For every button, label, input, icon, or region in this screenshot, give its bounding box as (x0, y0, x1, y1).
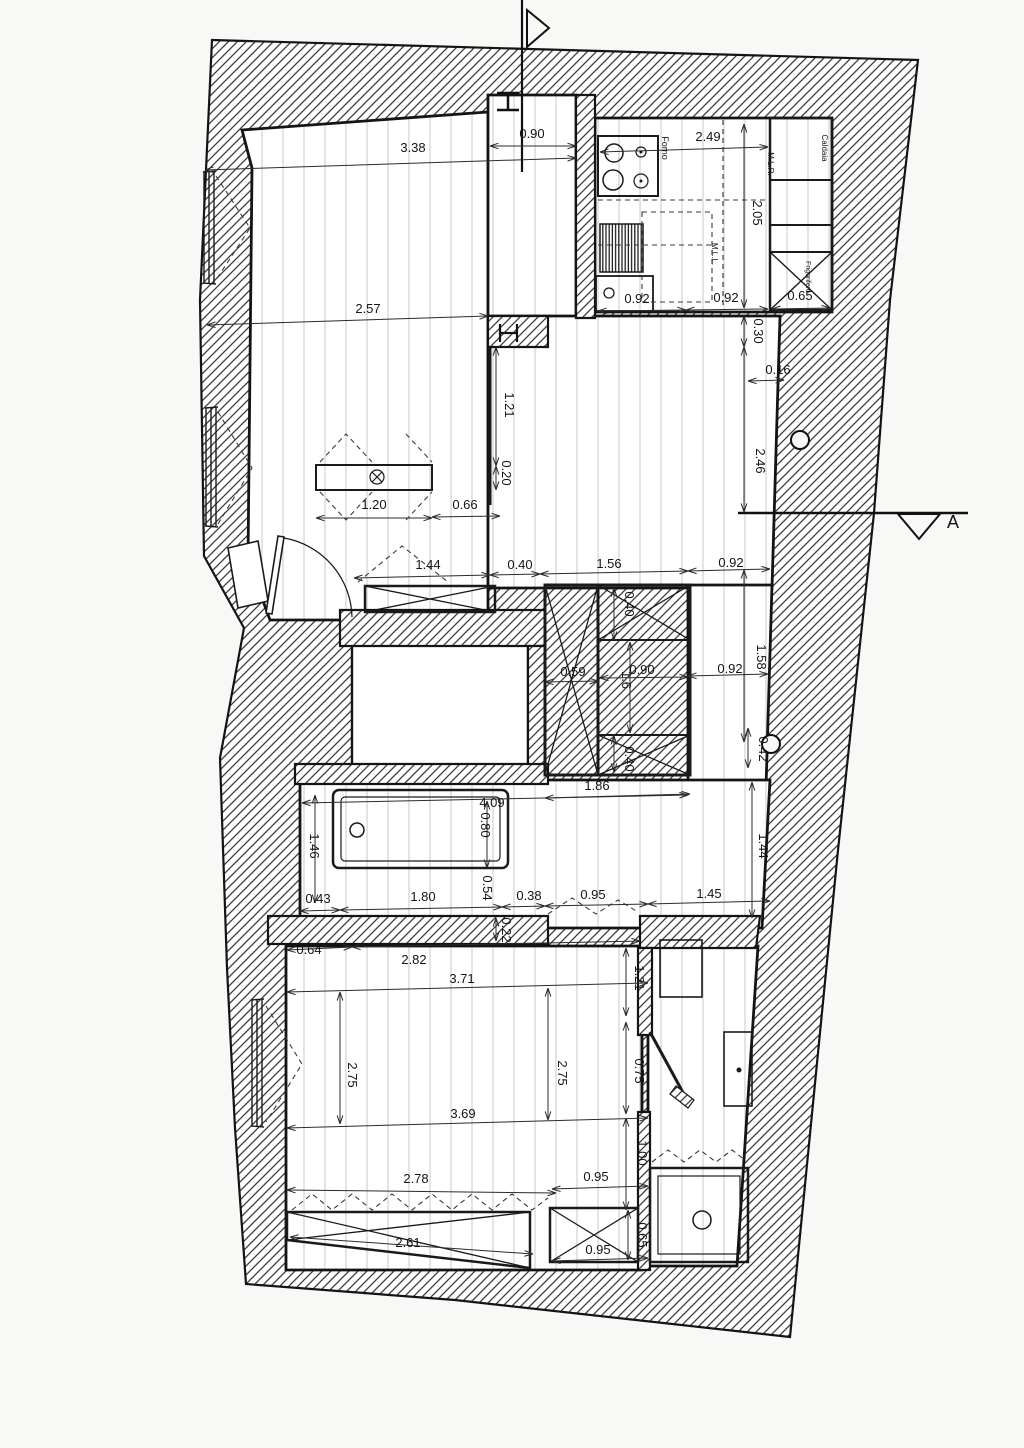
dim-label: 0.65 (635, 1222, 650, 1247)
floor-plan-sheet: 0.903.382.49FornoM.L.R.Caldaia2.05M.L.L.… (0, 0, 1024, 1448)
section-label-a: A (947, 512, 959, 532)
dim-label: 0.42 (756, 736, 771, 761)
dim-label: 1.56 (596, 556, 621, 571)
dim-label: 0.38 (516, 888, 541, 903)
dim-label: 2.57 (355, 301, 380, 316)
room-hall (488, 316, 780, 588)
dim-label: 0.40 (507, 557, 532, 572)
label-oven: Forno (660, 136, 670, 160)
dim-label: 0.66 (452, 497, 477, 512)
cabinet-knob-icon (737, 1068, 742, 1073)
dim-label: 0.92 (717, 661, 742, 676)
dim-label: 0.80 (478, 812, 493, 837)
dim-label: 0.40 (622, 591, 637, 616)
room-kitchen (595, 118, 832, 312)
dim-label: 2.75 (555, 1060, 570, 1085)
dim-label: 0.30 (751, 318, 766, 343)
dim-label: 1.86 (584, 778, 609, 793)
dim-label: 2.49 (695, 129, 720, 144)
dim-label: 1.20 (361, 497, 386, 512)
section-arrow-icon (898, 514, 940, 539)
dim-label: 0.75 (632, 1058, 647, 1083)
dim-label: 1.00 (635, 1140, 650, 1165)
void-shaft (352, 642, 528, 768)
dim-label: 3.71 (449, 971, 474, 986)
dim-label: 2.05 (750, 200, 765, 225)
dim-label: 1.21 (632, 965, 647, 990)
section-arrow-icon (527, 10, 549, 47)
dim-label: 1.44 (415, 557, 440, 572)
dim-label: 1.6 (619, 671, 634, 689)
dim-label: 0.16 (765, 362, 790, 377)
dim-label: 0.95 (585, 1242, 610, 1257)
dim-label: 0.20 (499, 460, 514, 485)
dim-label: 0.40 (622, 746, 637, 771)
dim-label: 1.58 (754, 644, 769, 669)
dim-label: 0.92 (624, 291, 649, 306)
dim-label: 3.38 (400, 140, 425, 155)
dim-label: 0.92 (713, 290, 738, 305)
dim-label: 1.80 (410, 889, 435, 904)
pipe-circle-icon (791, 431, 809, 449)
dim-label: 0.95 (583, 1169, 608, 1184)
dim-label: 0.65 (787, 288, 812, 303)
floor-plan-drawing: 0.903.382.49FornoM.L.R.Caldaia2.05M.L.L.… (0, 0, 1024, 1448)
dim-label: 2.78 (403, 1171, 428, 1186)
dim-label: 0.90 (519, 126, 544, 141)
dim-label: 4.09 (479, 795, 504, 810)
dim-label: 2.46 (753, 448, 768, 473)
dim-label: 0.43 (305, 891, 330, 906)
dim-label: 0.95 (580, 887, 605, 902)
dim-label: 2.61 (395, 1235, 420, 1250)
dim-label: 2.75 (345, 1062, 360, 1087)
dim-label: 1.46 (307, 833, 322, 858)
dim-label: 0.54 (480, 875, 495, 900)
dim-label: 0.22 (499, 917, 514, 942)
dim-label: 0.92 (718, 555, 743, 570)
label-boiler: Caldaia (820, 134, 829, 162)
dim-label: 3.69 (450, 1106, 475, 1121)
dim-label: 1.21 (502, 392, 517, 417)
burner-dot (640, 180, 643, 183)
dim-label: 0.59 (560, 664, 585, 679)
radiator (600, 224, 643, 272)
label-mll: M.L.L. (710, 243, 719, 265)
dim-label: 1.45 (696, 886, 721, 901)
dim-label: 1.44 (756, 833, 771, 858)
label-mlr: M.L.R. (766, 152, 775, 176)
dim-label: 0.64 (296, 942, 321, 957)
dim-label: 2.82 (401, 952, 426, 967)
